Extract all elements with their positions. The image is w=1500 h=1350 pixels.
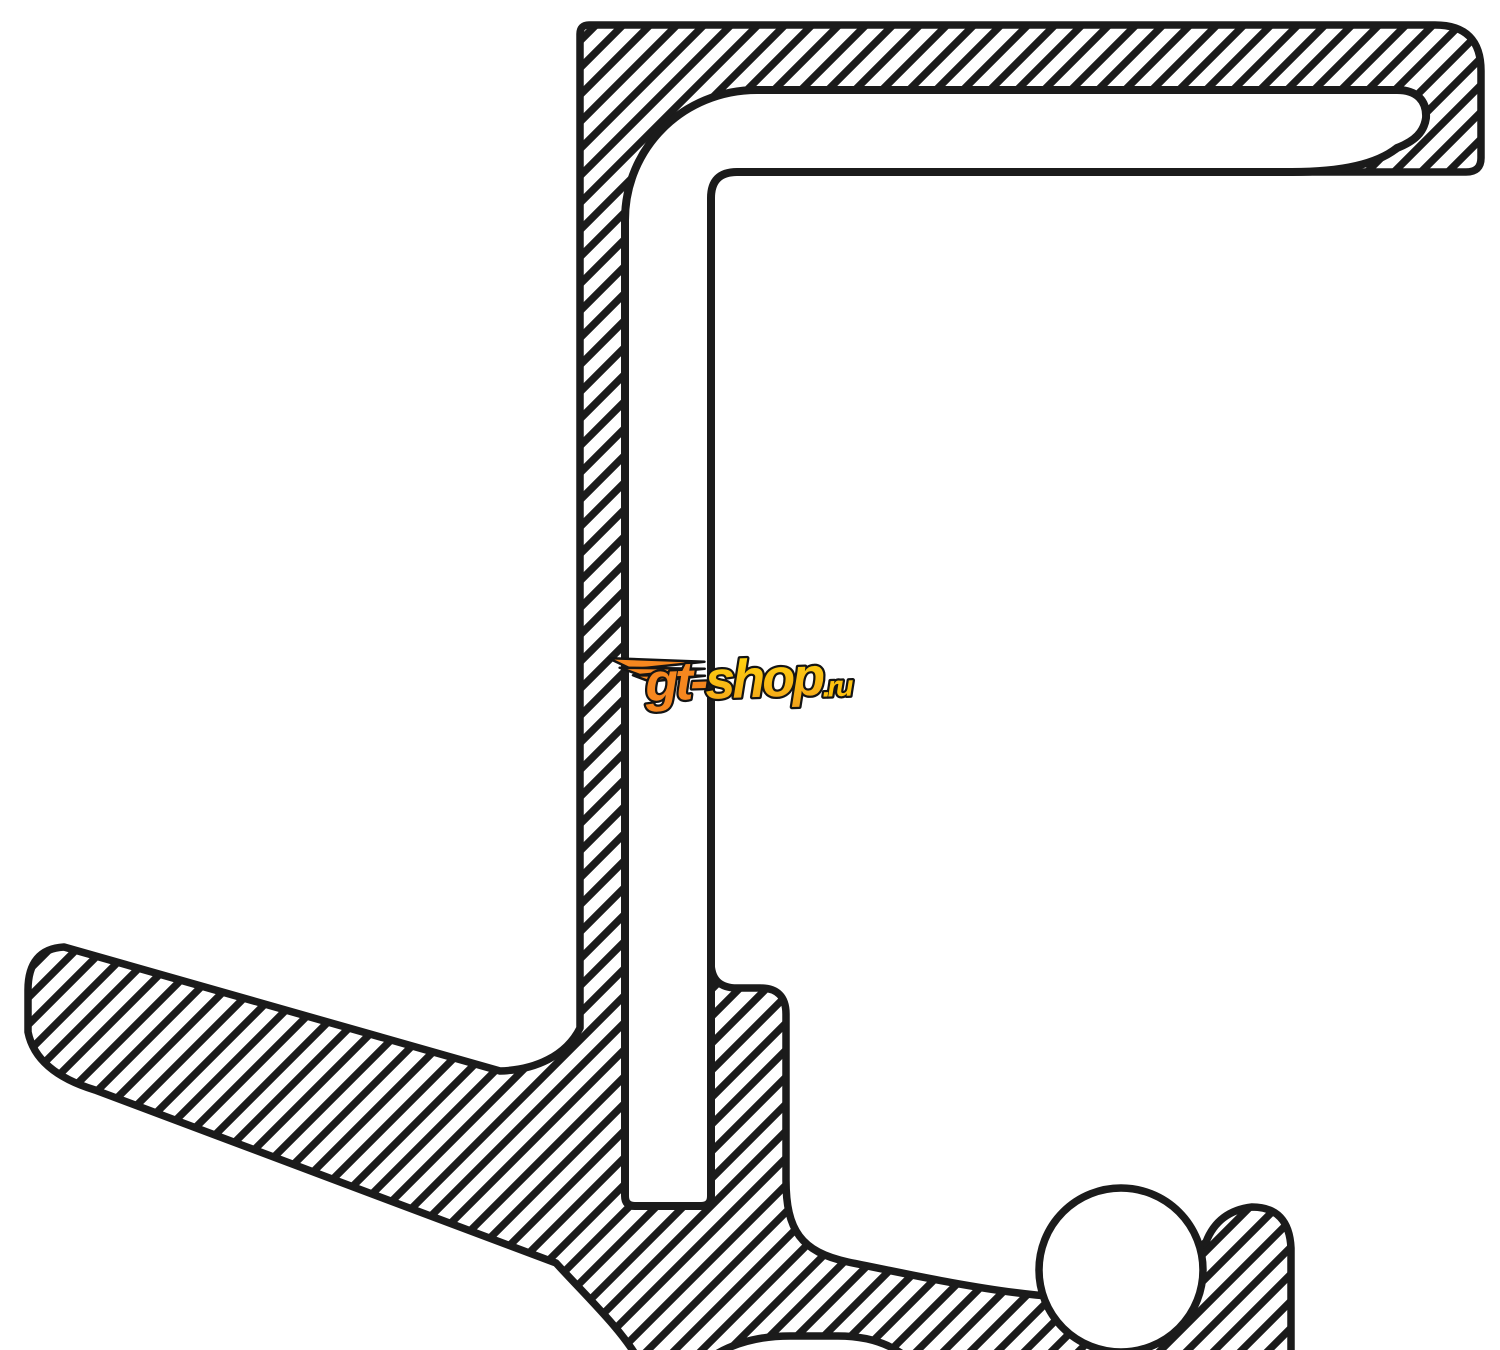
seal-cross-section-diagram: gt-shop.ru bbox=[0, 0, 1500, 1350]
watermark: gt-shop.ru bbox=[608, 646, 854, 714]
watermark-suffix: .ru bbox=[822, 671, 854, 704]
watermark-prefix: gt- bbox=[643, 651, 708, 713]
diagram-canvas: gt-shop.ru bbox=[0, 0, 1500, 1350]
watermark-body: shop bbox=[704, 647, 825, 711]
garter-spring bbox=[1039, 1188, 1203, 1350]
